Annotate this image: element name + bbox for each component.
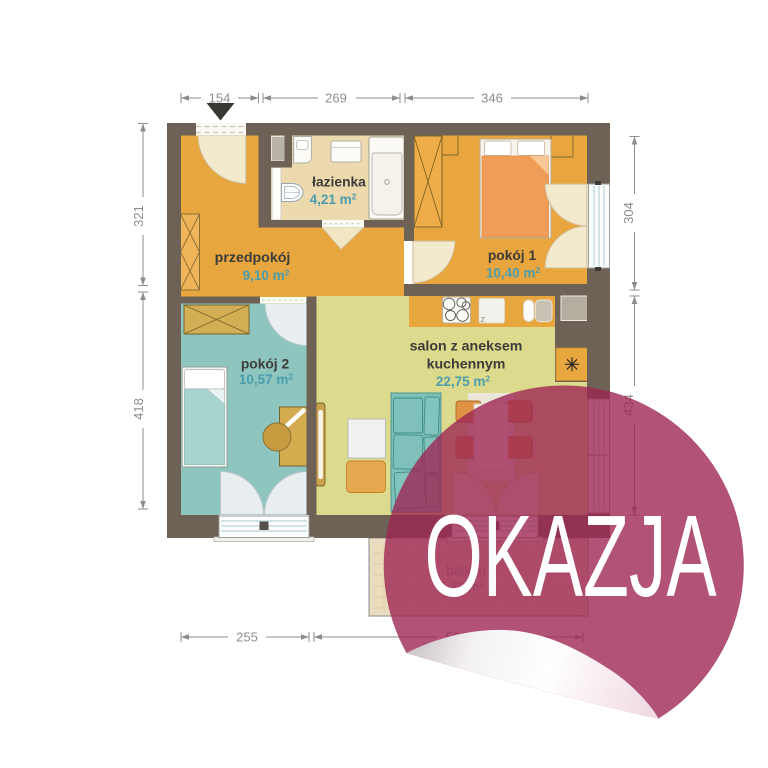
svg-text:salon z aneksem: salon z aneksem [410, 339, 523, 355]
svg-text:10,57 m2: 10,57 m2 [239, 372, 294, 388]
svg-text:22,75 m2: 22,75 m2 [436, 374, 491, 390]
svg-text:kuchennym: kuchennym [427, 357, 506, 373]
svg-text:z: z [481, 314, 486, 324]
svg-text:346: 346 [481, 91, 503, 106]
svg-text:9,10 m2: 9,10 m2 [243, 268, 290, 284]
svg-text:pokój 2: pokój 2 [241, 357, 290, 372]
svg-text:przedpokój: przedpokój [215, 250, 291, 266]
svg-text:4,21 m2: 4,21 m2 [310, 192, 357, 208]
svg-text:418: 418 [131, 398, 146, 420]
svg-text:10,40 m2: 10,40 m2 [486, 265, 541, 281]
svg-text:pokój 1: pokój 1 [488, 248, 537, 263]
svg-text:255: 255 [236, 630, 258, 645]
svg-text:154: 154 [209, 91, 231, 106]
svg-text:269: 269 [325, 91, 347, 106]
svg-text:304: 304 [621, 202, 636, 224]
svg-text:321: 321 [131, 205, 146, 227]
svg-text:łazienka: łazienka [312, 175, 366, 190]
svg-text:OKAZJA: OKAZJA [424, 492, 716, 621]
